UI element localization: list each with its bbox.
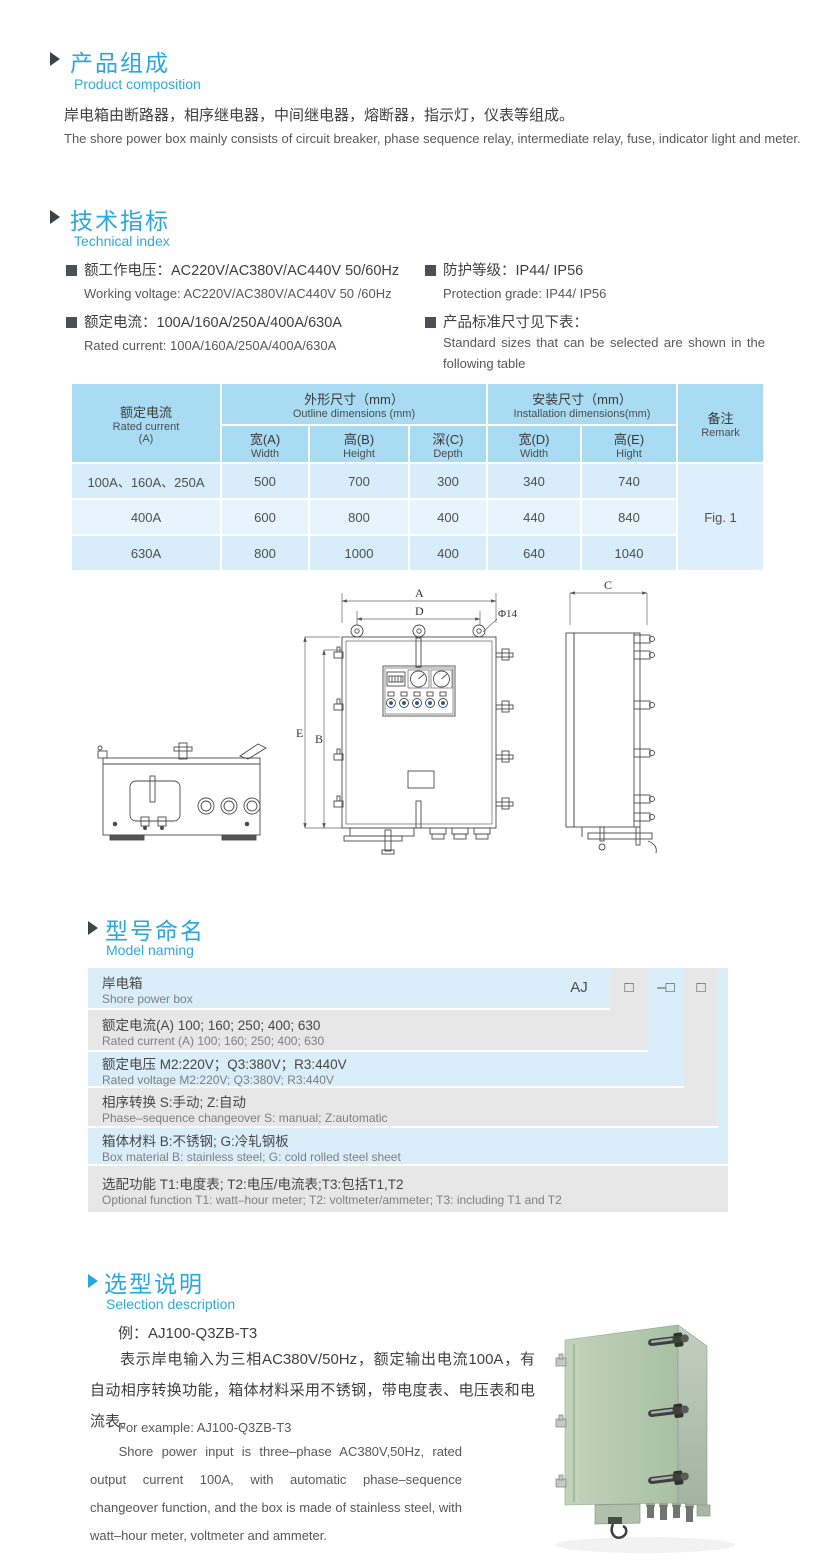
drawing-front-view bbox=[334, 625, 513, 854]
dim-label-d: D bbox=[415, 604, 424, 618]
section-title-composition: 产品组成 bbox=[70, 44, 170, 78]
tech-bullet-sizes-en: Standard sizes that can be selected are … bbox=[443, 332, 765, 374]
selection-paragraph-en: Shore power input is three–phase AC380V,… bbox=[90, 1438, 462, 1550]
tech-bullet-protection-en: Protection grade: IP44/ IP56 bbox=[443, 286, 606, 301]
section-arrow-icon bbox=[88, 1274, 98, 1288]
section-arrow-icon bbox=[88, 921, 98, 935]
datasheet-page: 产品组成 Product composition 岸电箱由断路器，相序继电器，中… bbox=[0, 0, 830, 1568]
composition-text-zh: 岸电箱由断路器，相序继电器，中间继电器，熔断器，指示灯，仪表等组成。 bbox=[64, 104, 784, 125]
section-subtitle-technical: Technical index bbox=[74, 233, 170, 249]
model-row-optional-function: 选配功能 T1:电度表; T2:电压/电流表;T3:包括T1,T2 Option… bbox=[88, 1166, 728, 1212]
tech-bullet-current: 额定电流：100A/160A/250A/400A/630A bbox=[66, 311, 342, 332]
composition-text-en: The shore power box mainly consists of c… bbox=[64, 131, 804, 146]
product-photo bbox=[540, 1312, 795, 1562]
model-row-shore-power-box: 岸电箱 Shore power box bbox=[88, 968, 610, 1008]
bullet-square-icon bbox=[66, 265, 77, 276]
section-title-technical: 技术指标 bbox=[70, 202, 170, 236]
technical-drawing: A D Φ14 E B bbox=[0, 575, 830, 875]
drawing-top-view bbox=[98, 743, 266, 840]
section-title-selection: 选型说明 bbox=[104, 1265, 204, 1299]
drawing-side-view bbox=[566, 633, 656, 853]
th-height-e: 高(E)Hight bbox=[582, 426, 676, 462]
section-subtitle-model-naming: Model naming bbox=[106, 942, 194, 958]
front-dimensions bbox=[305, 593, 497, 828]
hinge-tabs bbox=[556, 1354, 566, 1487]
latches bbox=[496, 649, 513, 809]
model-row-rated-current: 额定电流(A) 100; 160; 250; 400; 630 Rated cu… bbox=[88, 1010, 648, 1050]
selection-example-en: For example: AJ100-Q3ZB-T3 bbox=[118, 1420, 291, 1435]
section-subtitle-composition: Product composition bbox=[74, 76, 201, 92]
dim-label-b: B bbox=[315, 732, 323, 746]
dim-label-a: A bbox=[415, 586, 424, 600]
selection-example-zh: 例：AJ100-Q3ZB-T3 bbox=[118, 1322, 257, 1343]
model-code-box2: –□ bbox=[648, 968, 684, 1008]
th-install-dims: 安装尺寸（mm） Installation dimensions(mm) bbox=[488, 384, 676, 424]
tech-bullet-protection: 防护等级：IP44/ IP56 bbox=[425, 259, 583, 280]
section-arrow-icon bbox=[50, 210, 60, 224]
dimension-table: 额定电流 Rated current (A) 外形尺寸（mm） Outline … bbox=[70, 382, 765, 572]
photo-shadow bbox=[555, 1537, 735, 1553]
model-code-box1: □ bbox=[610, 968, 648, 1008]
dim-label-hole: Φ14 bbox=[498, 608, 518, 620]
section-subtitle-selection: Selection description bbox=[106, 1296, 235, 1312]
model-code-box3: □ bbox=[684, 968, 718, 1008]
th-remark: 备注 Remark bbox=[678, 384, 763, 462]
section-arrow-icon bbox=[50, 52, 60, 66]
bullet-square-icon bbox=[425, 265, 436, 276]
tech-bullet-voltage-en: Working voltage: AC220V/AC380V/AC440V 50… bbox=[84, 286, 392, 301]
tech-bullet-sizes: 产品标准尺寸见下表： bbox=[425, 311, 588, 332]
th-outline-dims: 外形尺寸（mm） Outline dimensions (mm) bbox=[222, 384, 486, 424]
model-row-rated-voltage: 额定电压 M2:220V；Q3:380V；R3:440V Rated volta… bbox=[88, 1052, 684, 1086]
side-latches bbox=[634, 635, 655, 821]
th-width-a: 宽(A)Width bbox=[222, 426, 308, 462]
dim-label-e: E bbox=[296, 726, 303, 740]
indicator-lights bbox=[387, 692, 448, 708]
tech-bullet-voltage: 额工作电压：AC220V/AC380V/AC440V 50/60Hz bbox=[66, 259, 399, 280]
th-width-d: 宽(D)Width bbox=[488, 426, 580, 462]
side-dimensions bbox=[570, 593, 647, 625]
dim-label-c: C bbox=[604, 578, 612, 592]
bullet-square-icon bbox=[425, 317, 436, 328]
table-row: 100A、160A、250A 500 700 300 340 740 Fig. … bbox=[72, 464, 763, 498]
table-row: 400A 600 800 400 440 840 bbox=[72, 500, 763, 534]
table-row: 630A 800 1000 400 640 1040 bbox=[72, 536, 763, 570]
model-row-phase-changeover: 相序转换 S:手动; Z:自动 Phase–sequence changeove… bbox=[88, 1088, 718, 1126]
section-title-model-naming: 型号命名 bbox=[105, 912, 205, 946]
bottom-fittings bbox=[595, 1503, 710, 1538]
th-rated-current: 额定电流 Rated current (A) bbox=[72, 384, 220, 462]
model-code-prefix: AJ bbox=[554, 968, 604, 1008]
th-depth-c: 深(C)Depth bbox=[410, 426, 486, 462]
model-row-box-material: 箱体材料 B:不锈钢; G:冷轧钢板 Box material B: stain… bbox=[88, 1128, 728, 1164]
model-naming-table: 岸电箱 Shore power box AJ □ –□ □ 额定电流(A) 10… bbox=[88, 968, 728, 1214]
th-height-b: 高(B)Height bbox=[310, 426, 408, 462]
bullet-square-icon bbox=[66, 317, 77, 328]
remark-cell: Fig. 1 bbox=[678, 464, 763, 570]
tech-bullet-current-en: Rated current: 100A/160A/250A/400A/630A bbox=[84, 338, 336, 353]
